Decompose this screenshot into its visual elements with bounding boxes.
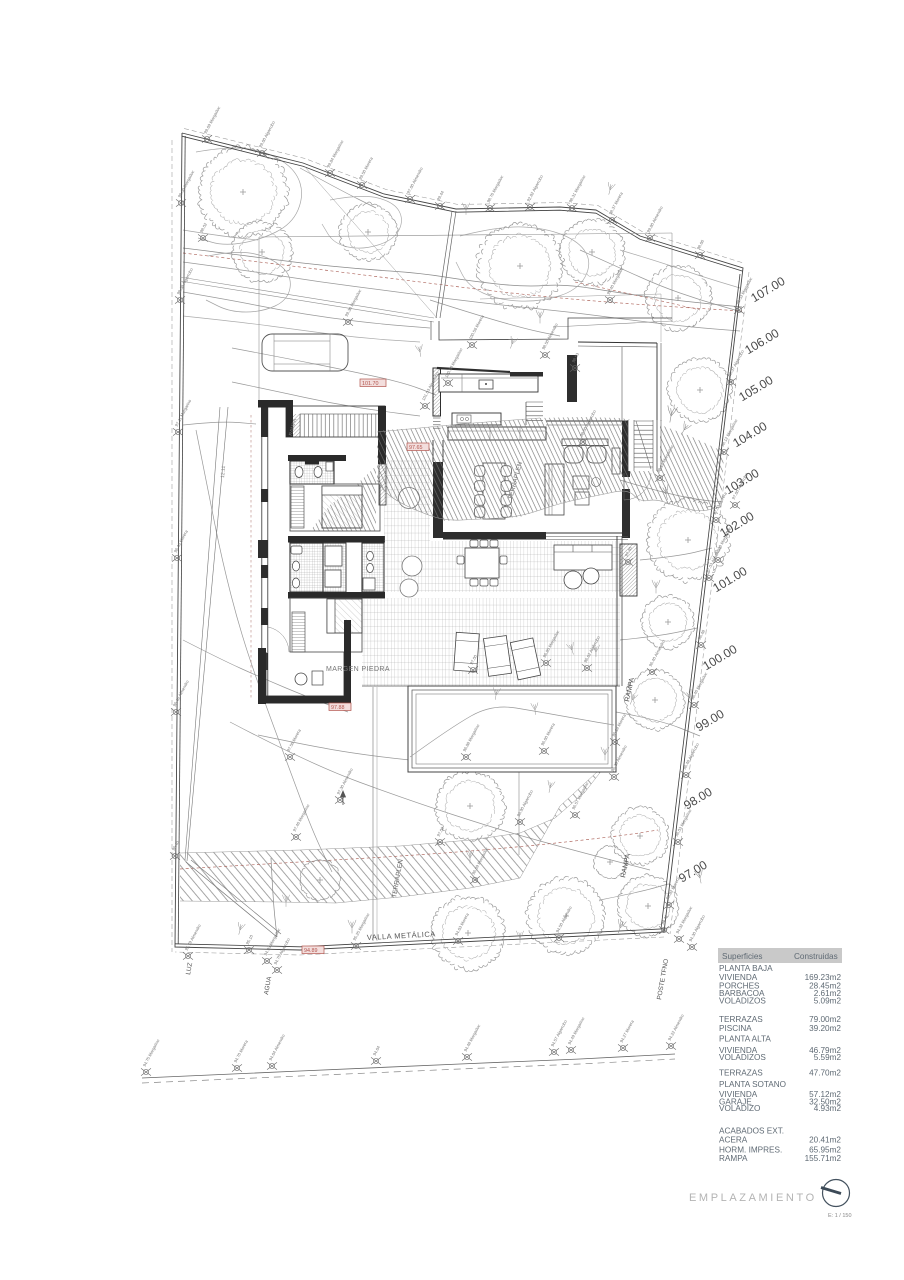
svg-text:TERRAZAS: TERRAZAS: [719, 1015, 763, 1024]
svg-text:39.20m2: 39.20m2: [809, 1024, 841, 1033]
svg-text:20.41m2: 20.41m2: [809, 1136, 841, 1145]
svg-text:12.11: 12.11: [220, 465, 227, 478]
svg-text:PLANTA BAJA: PLANTA BAJA: [719, 964, 773, 973]
svg-text:5.59m2: 5.59m2: [814, 1053, 842, 1062]
svg-text:VOLADIZOS: VOLADIZOS: [719, 1053, 766, 1062]
svg-text:79.00m2: 79.00m2: [809, 1015, 841, 1024]
svg-text:PLANTA ALTA: PLANTA ALTA: [719, 1035, 771, 1044]
svg-text:VOLADIZO: VOLADIZO: [719, 1104, 760, 1113]
svg-text:47.70m2: 47.70m2: [809, 1069, 841, 1078]
svg-text:155.71m2: 155.71m2: [805, 1154, 842, 1163]
svg-text:5.09m2: 5.09m2: [814, 997, 842, 1006]
svg-text:Construidas: Construidas: [794, 952, 838, 961]
svg-text:VOLADIZOS: VOLADIZOS: [719, 997, 766, 1006]
svg-text:E: 1 / 150: E: 1 / 150: [828, 1213, 852, 1219]
svg-text:Superficies: Superficies: [722, 952, 763, 961]
svg-text:PISCINA: PISCINA: [719, 1024, 752, 1033]
svg-text:EMPLAZAMIENTO: EMPLAZAMIENTO: [689, 1192, 817, 1204]
svg-text:ACERA: ACERA: [719, 1136, 748, 1145]
svg-text:MARGEN PIEDRA: MARGEN PIEDRA: [326, 666, 390, 673]
svg-text:97.65: 97.65: [409, 445, 423, 451]
svg-text:4.93m2: 4.93m2: [814, 1104, 842, 1113]
svg-text:RAMPA: RAMPA: [719, 1154, 748, 1163]
svg-text:101.70: 101.70: [362, 381, 379, 387]
svg-text:97.88: 97.88: [331, 705, 345, 711]
svg-text:ACABADOS EXT.: ACABADOS EXT.: [719, 1127, 784, 1136]
svg-text:TERRAZAS: TERRAZAS: [719, 1069, 763, 1078]
svg-text:PLANTA SOTANO: PLANTA SOTANO: [719, 1080, 786, 1089]
svg-text:94.89: 94.89: [304, 948, 318, 954]
